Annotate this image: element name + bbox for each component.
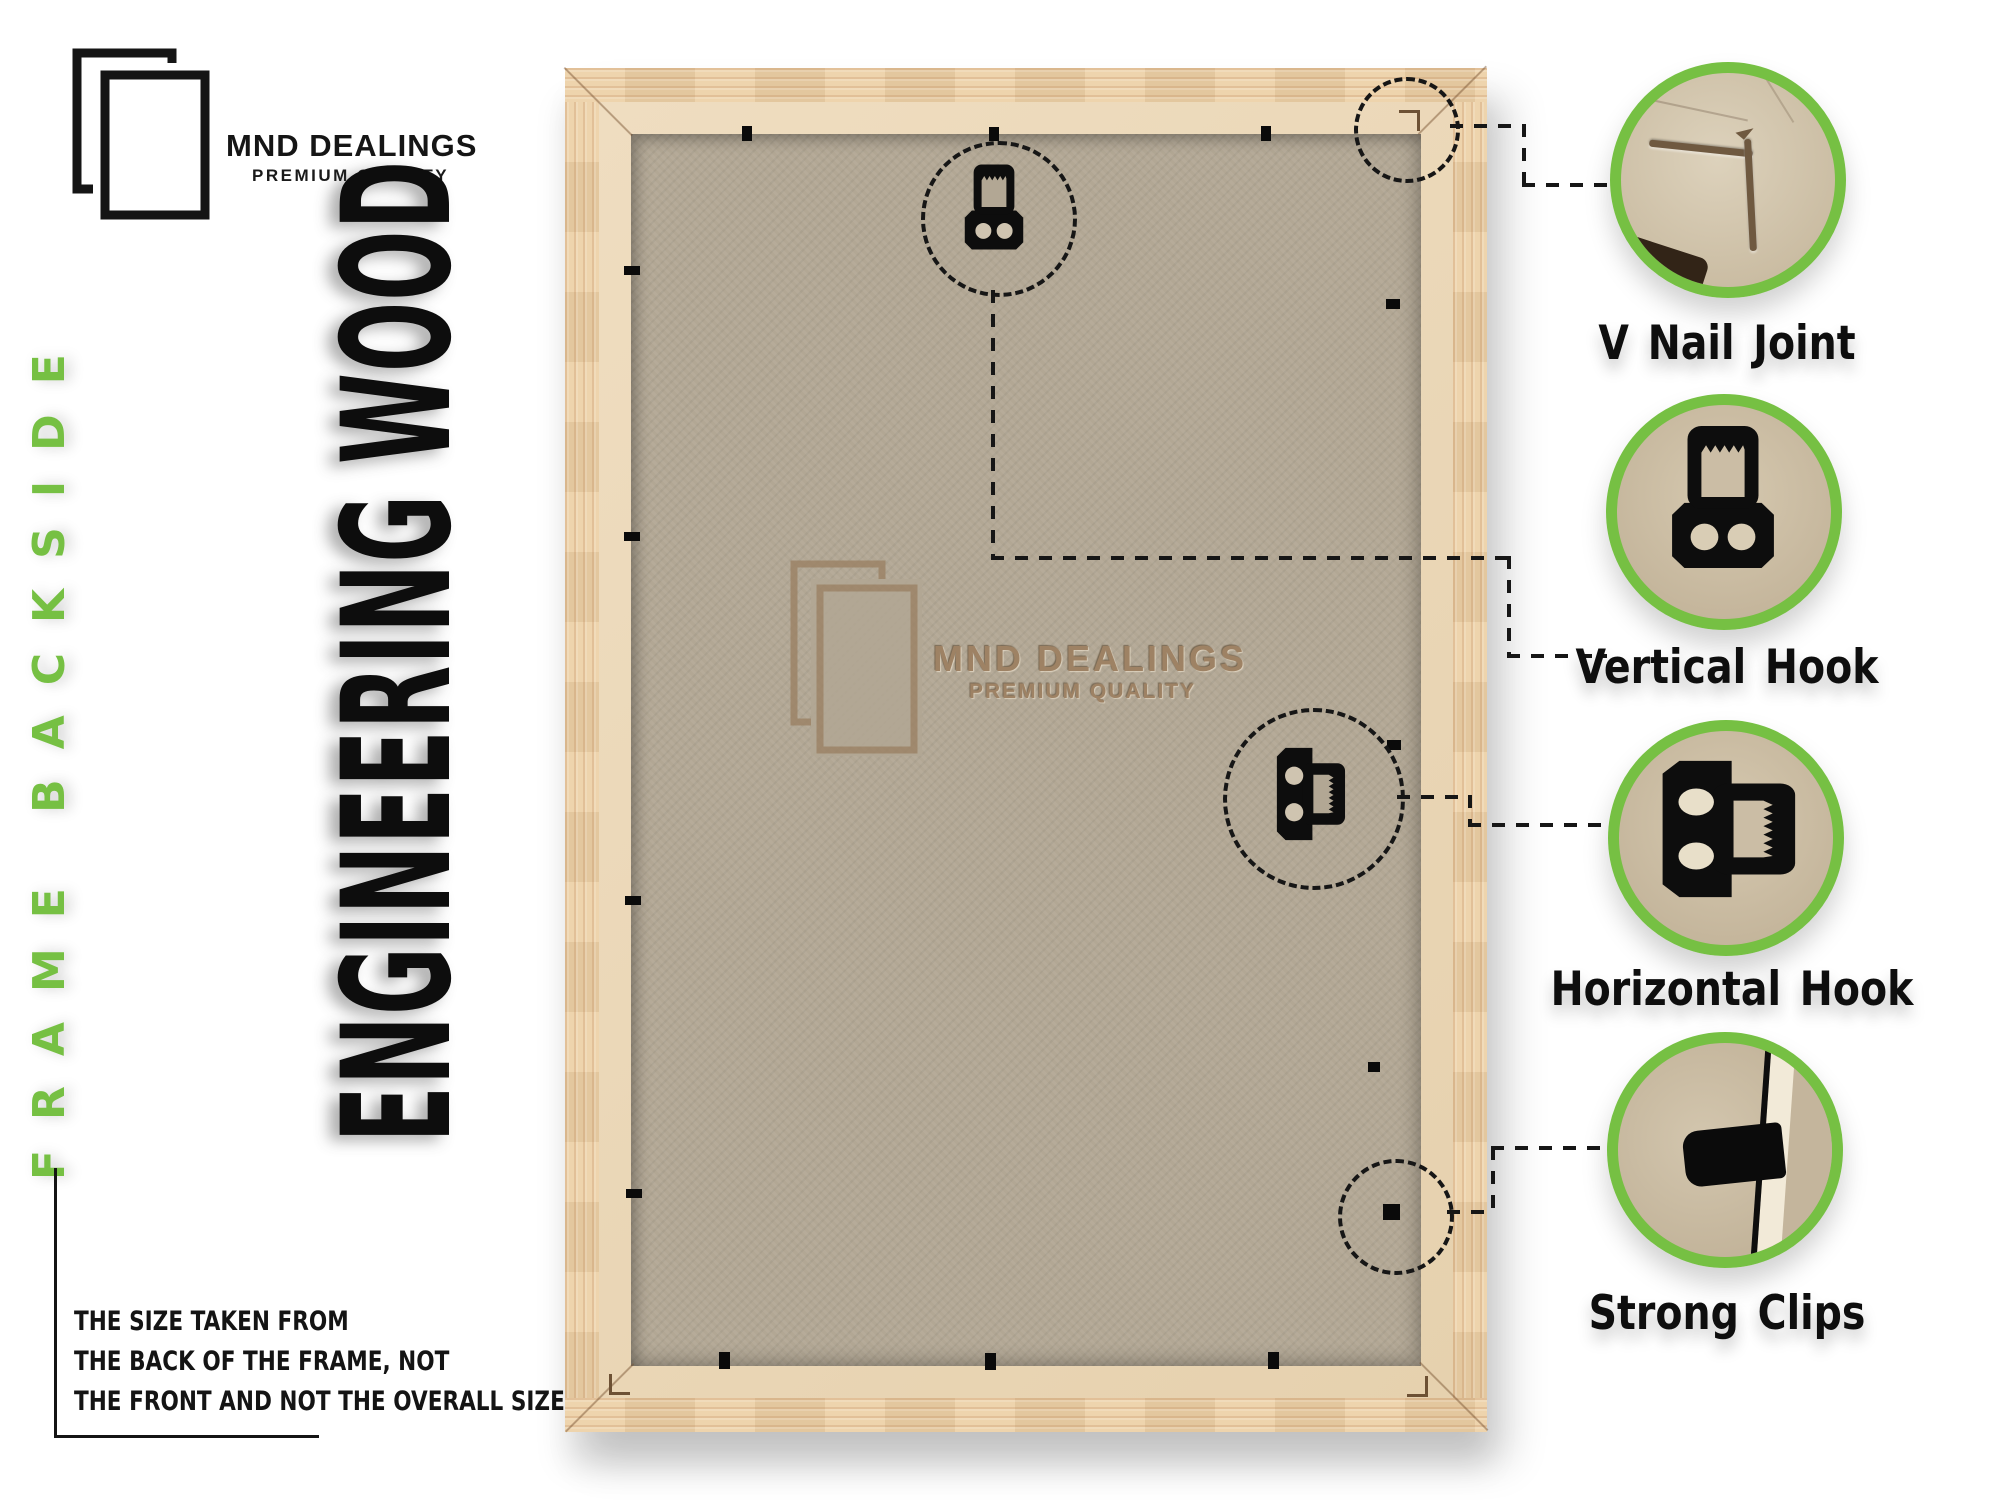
v-nail-arrow-tip bbox=[1735, 121, 1753, 140]
metal-clip bbox=[624, 266, 640, 275]
watermark-frames-icon bbox=[790, 560, 922, 756]
connector-v-nail bbox=[1522, 124, 1526, 186]
side-label-frame-backside: FRAME BACKSIDE bbox=[20, 340, 80, 1180]
connector-vertical-hook bbox=[991, 290, 995, 560]
callout-photo-v-nail-joint bbox=[1610, 62, 1846, 298]
callout-label-horizontal-hook: Horizontal Hook bbox=[1551, 962, 1904, 1017]
highlight-circle-corner-joint bbox=[1354, 77, 1460, 183]
connector-horizontal-hook bbox=[1397, 795, 1472, 799]
connector-horizontal-hook bbox=[1468, 823, 1615, 827]
frame-wood-border-bottom bbox=[565, 1398, 1487, 1432]
highlight-circle-horizontal-hook bbox=[1223, 708, 1405, 890]
metal-clip bbox=[624, 532, 640, 541]
connector-strong-clips bbox=[1447, 1210, 1495, 1214]
watermark-name: MND DEALINGS bbox=[933, 638, 1247, 680]
callout-label-vertical-hook: Vertical Hook bbox=[1551, 640, 1904, 695]
callout-photo-horizontal-hook bbox=[1608, 720, 1844, 956]
connector-v-nail bbox=[1450, 124, 1526, 128]
brand-logo-frames-icon bbox=[72, 48, 212, 220]
metal-clip bbox=[742, 126, 752, 141]
frame-wood-border-right bbox=[1453, 102, 1487, 1398]
callout-label-strong-clips: Strong Clips bbox=[1551, 1286, 1904, 1341]
watermark-tagline: PREMIUM QUALITY bbox=[969, 680, 1196, 704]
callout-photo-vertical-hook bbox=[1606, 394, 1842, 630]
note-bracket-vertical-line bbox=[54, 1168, 57, 1438]
horizontal-hook-icon bbox=[1657, 758, 1797, 900]
callout-photo-strong-clips bbox=[1607, 1032, 1843, 1268]
v-nail-mark-bottom-left bbox=[609, 1374, 630, 1395]
connector-strong-clips bbox=[1491, 1146, 1608, 1150]
material-headline: ENGINEERING WOOD bbox=[318, 207, 478, 1142]
metal-clip bbox=[1268, 1352, 1279, 1369]
size-note-line-3: THE FRONT AND NOT THE OVERALL SIZE. bbox=[74, 1382, 573, 1422]
metal-clip bbox=[625, 896, 641, 905]
connector-strong-clips bbox=[1491, 1147, 1495, 1213]
brand-name: MND DEALINGS bbox=[226, 128, 477, 164]
metal-clip bbox=[1368, 1062, 1380, 1072]
frame-backside-infographic: MND DEALINGS PREMIUM QUALITY FRAME BACKS… bbox=[0, 0, 2000, 1500]
size-note-line-2: THE BACK OF THE FRAME, NOT bbox=[74, 1342, 573, 1382]
metal-clip bbox=[1261, 126, 1271, 141]
v-nail-groove-vertical bbox=[1744, 139, 1757, 251]
highlight-circle-strong-clip bbox=[1338, 1159, 1454, 1275]
metal-clip bbox=[1386, 299, 1400, 309]
connector-v-nail bbox=[1522, 183, 1610, 187]
size-note-line-1: THE SIZE TAKEN FROM bbox=[74, 1302, 573, 1342]
metal-clip bbox=[985, 1353, 996, 1370]
metal-clip bbox=[719, 1352, 730, 1369]
metal-clip bbox=[626, 1189, 642, 1198]
highlight-circle-vertical-hook bbox=[921, 141, 1077, 297]
strong-clip-icon bbox=[1681, 1122, 1786, 1188]
connector-vertical-hook bbox=[991, 556, 1511, 560]
connector-vertical-hook bbox=[1507, 556, 1511, 658]
wood-shadow-wedge bbox=[1610, 232, 1710, 298]
frame-wood-border-left bbox=[565, 102, 599, 1398]
v-nail-mark-bottom-right bbox=[1407, 1376, 1428, 1397]
wood-crack-line bbox=[1740, 62, 1795, 123]
callout-label-v-nail-joint: V Nail Joint bbox=[1551, 316, 1904, 371]
vertical-hook-icon bbox=[1669, 423, 1777, 571]
wood-crack-line bbox=[1630, 95, 1748, 122]
metal-clip bbox=[989, 127, 999, 141]
note-bracket-horizontal-line bbox=[54, 1435, 319, 1438]
v-nail-groove-horizontal bbox=[1649, 140, 1753, 158]
frame-wood-border-top bbox=[565, 68, 1487, 102]
